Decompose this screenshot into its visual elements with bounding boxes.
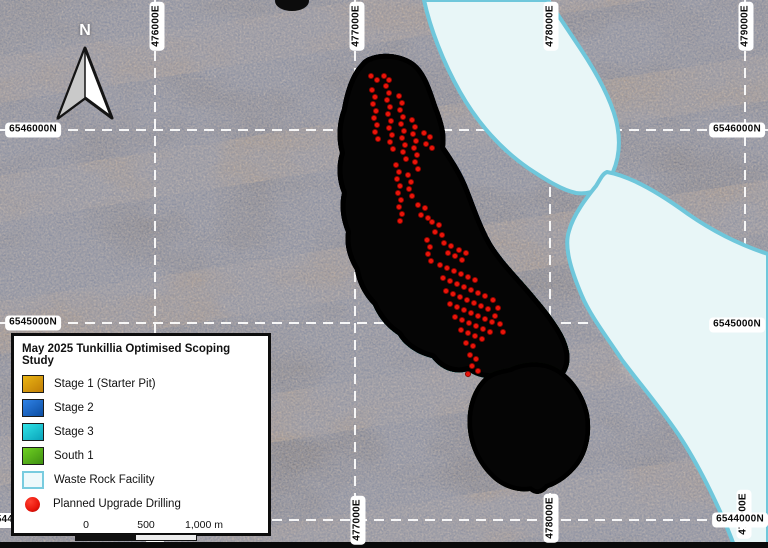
drill-point [410, 131, 415, 136]
drill-point [372, 129, 377, 134]
drill-point [386, 77, 391, 82]
legend-item-south1: South 1 [22, 444, 260, 468]
grid-label-pill: 6545000N [709, 318, 765, 333]
drill-point [463, 340, 468, 345]
drill-point [470, 343, 475, 348]
south1-label: South 1 [54, 450, 94, 462]
drill-point [489, 319, 494, 324]
legend-item-wrf: Waste Rock Facility [22, 468, 260, 492]
drill-point [436, 222, 441, 227]
drill-point [412, 159, 417, 164]
drill-point [422, 205, 427, 210]
drill-point [399, 135, 404, 140]
drilling-swatch [25, 497, 40, 512]
drill-point [482, 316, 487, 321]
drill-point [415, 202, 420, 207]
drill-point [459, 257, 464, 262]
drill-point [480, 326, 485, 331]
drill-point [475, 290, 480, 295]
drill-point [482, 293, 487, 298]
drill-point [374, 77, 379, 82]
drill-point [384, 97, 389, 102]
drill-point [386, 90, 391, 95]
drill-point [500, 329, 505, 334]
drill-point [468, 287, 473, 292]
drill-point [397, 107, 402, 112]
drill-point [415, 166, 420, 171]
drill-point [473, 323, 478, 328]
drill-point [456, 247, 461, 252]
grid-label-pill: 6544000N [712, 513, 768, 528]
drill-point [445, 250, 450, 255]
drill-point [468, 310, 473, 315]
drill-point [478, 303, 483, 308]
drill-point [405, 172, 410, 177]
drill-point [429, 219, 434, 224]
drill-point [399, 100, 404, 105]
grid-label-pill: 478000E [544, 493, 559, 542]
drill-point [472, 333, 477, 338]
legend-item-stage3: Stage 3 [22, 420, 260, 444]
drill-point [390, 146, 395, 151]
drill-point [440, 275, 445, 280]
wrf-swatch [22, 471, 44, 489]
stage2-swatch [22, 399, 44, 417]
drill-point [427, 134, 432, 139]
drill-point [487, 329, 492, 334]
drill-point [465, 371, 470, 376]
drill-point [400, 114, 405, 119]
drill-point [372, 94, 377, 99]
drill-point [495, 305, 500, 310]
drill-point [374, 122, 379, 127]
drill-point [409, 117, 414, 122]
drill-point [398, 121, 403, 126]
drill-point [465, 274, 470, 279]
drill-point [469, 363, 474, 368]
drill-point [471, 300, 476, 305]
drill-point [393, 162, 398, 167]
drill-point [387, 104, 392, 109]
drill-point [389, 132, 394, 137]
drill-point [411, 145, 416, 150]
drill-point [447, 301, 452, 306]
stage1-label: Stage 1 (Starter Pit) [54, 378, 156, 390]
stage3-label: Stage 3 [54, 426, 94, 438]
drill-point [466, 320, 471, 325]
drill-point [409, 193, 414, 198]
drill-point [398, 197, 403, 202]
drilling-label: Planned Upgrade Drilling [53, 498, 181, 510]
drill-point [457, 294, 462, 299]
grid-label-pill: 6546000N [5, 123, 61, 138]
drill-point [459, 317, 464, 322]
drill-point [472, 277, 477, 282]
drill-point [464, 297, 469, 302]
drill-point [479, 336, 484, 341]
legend-item-stage1: Stage 1 (Starter Pit) [22, 372, 260, 396]
drill-point [385, 111, 390, 116]
drill-point [490, 297, 495, 302]
drill-point [394, 176, 399, 181]
drill-point [492, 313, 497, 318]
drill-point [439, 232, 444, 237]
drill-point [452, 253, 457, 258]
drill-point [387, 139, 392, 144]
drill-point [465, 330, 470, 335]
legend-panel: May 2025 Tunkillia Optimised Scoping Stu… [11, 333, 271, 536]
stage1-swatch [22, 375, 44, 393]
drill-point [425, 215, 430, 220]
scale-tick-500: 500 [137, 519, 155, 531]
drill-point [461, 284, 466, 289]
drill-point [395, 190, 400, 195]
drill-point [383, 83, 388, 88]
drill-point [437, 262, 442, 267]
drill-point [403, 156, 408, 161]
wrf-label: Waste Rock Facility [54, 474, 155, 486]
drill-point [418, 212, 423, 217]
drill-point [396, 93, 401, 98]
drill-point [458, 327, 463, 332]
drill-point [461, 307, 466, 312]
drill-point [375, 136, 380, 141]
drill-point [425, 251, 430, 256]
drill-point [369, 87, 374, 92]
drill-point [429, 145, 434, 150]
north-arrow: N [50, 22, 120, 122]
map-canvas: EL 590 [0, 0, 768, 548]
drill-point [497, 321, 502, 326]
drill-point [463, 250, 468, 255]
drill-point [413, 138, 418, 143]
legend-title: May 2025 Tunkillia Optimised Scoping Stu… [22, 343, 260, 367]
legend-item-drilling: Planned Upgrade Drilling [22, 492, 260, 516]
drill-point [396, 169, 401, 174]
drill-point [412, 124, 417, 129]
drill-point [475, 313, 480, 318]
drill-point [424, 237, 429, 242]
scale-bar: 0 500 1,000 m [22, 519, 260, 548]
drill-point [402, 142, 407, 147]
drill-point [447, 278, 452, 283]
drill-point [443, 288, 448, 293]
drill-point [458, 271, 463, 276]
drill-point [397, 218, 402, 223]
grid-label-pill: 477000E [350, 1, 365, 50]
drill-point [396, 204, 401, 209]
drill-point [371, 115, 376, 120]
drill-point [388, 118, 393, 123]
drill-point [428, 258, 433, 263]
north-arrow-glyph [50, 22, 120, 122]
drill-point [485, 306, 490, 311]
drill-point [450, 291, 455, 296]
drill-point [400, 149, 405, 154]
drill-point [399, 211, 404, 216]
drill-point [451, 268, 456, 273]
drill-point [423, 141, 428, 146]
scale-tick-1000: 1,000 m [185, 519, 223, 531]
drill-point [473, 356, 478, 361]
drill-point [373, 108, 378, 113]
drill-point [432, 229, 437, 234]
drill-point [368, 73, 373, 78]
drill-point [441, 240, 446, 245]
drill-point [406, 186, 411, 191]
drill-point [454, 281, 459, 286]
drill-point [401, 128, 406, 133]
grid-label-pill: 6545000N [5, 316, 61, 331]
scale-tick-0: 0 [83, 519, 89, 531]
legend-item-stage2: Stage 2 [22, 396, 260, 420]
grid-label-pill: 476000E [150, 1, 165, 50]
drill-point [421, 130, 426, 135]
stage2-label: Stage 2 [54, 402, 94, 414]
drill-point [381, 73, 386, 78]
drill-point [475, 368, 480, 373]
stage3-swatch [22, 423, 44, 441]
drill-point [370, 101, 375, 106]
scale-bar-track [75, 534, 197, 541]
south1-swatch [22, 447, 44, 465]
drill-point [452, 314, 457, 319]
drill-point [427, 244, 432, 249]
grid-label-pill: 6546000N [709, 123, 765, 138]
scale-bar-filled-segment [76, 535, 136, 540]
drill-point [414, 152, 419, 157]
drill-point [444, 265, 449, 270]
grid-label-pill: 479000E [739, 1, 754, 50]
drill-point [467, 352, 472, 357]
drill-point [386, 125, 391, 130]
drill-point [397, 183, 402, 188]
drill-point [408, 179, 413, 184]
grid-label-pill: 477000E [351, 495, 366, 544]
grid-label-pill: 478000E [544, 1, 559, 50]
drill-point [448, 243, 453, 248]
drill-point [454, 304, 459, 309]
